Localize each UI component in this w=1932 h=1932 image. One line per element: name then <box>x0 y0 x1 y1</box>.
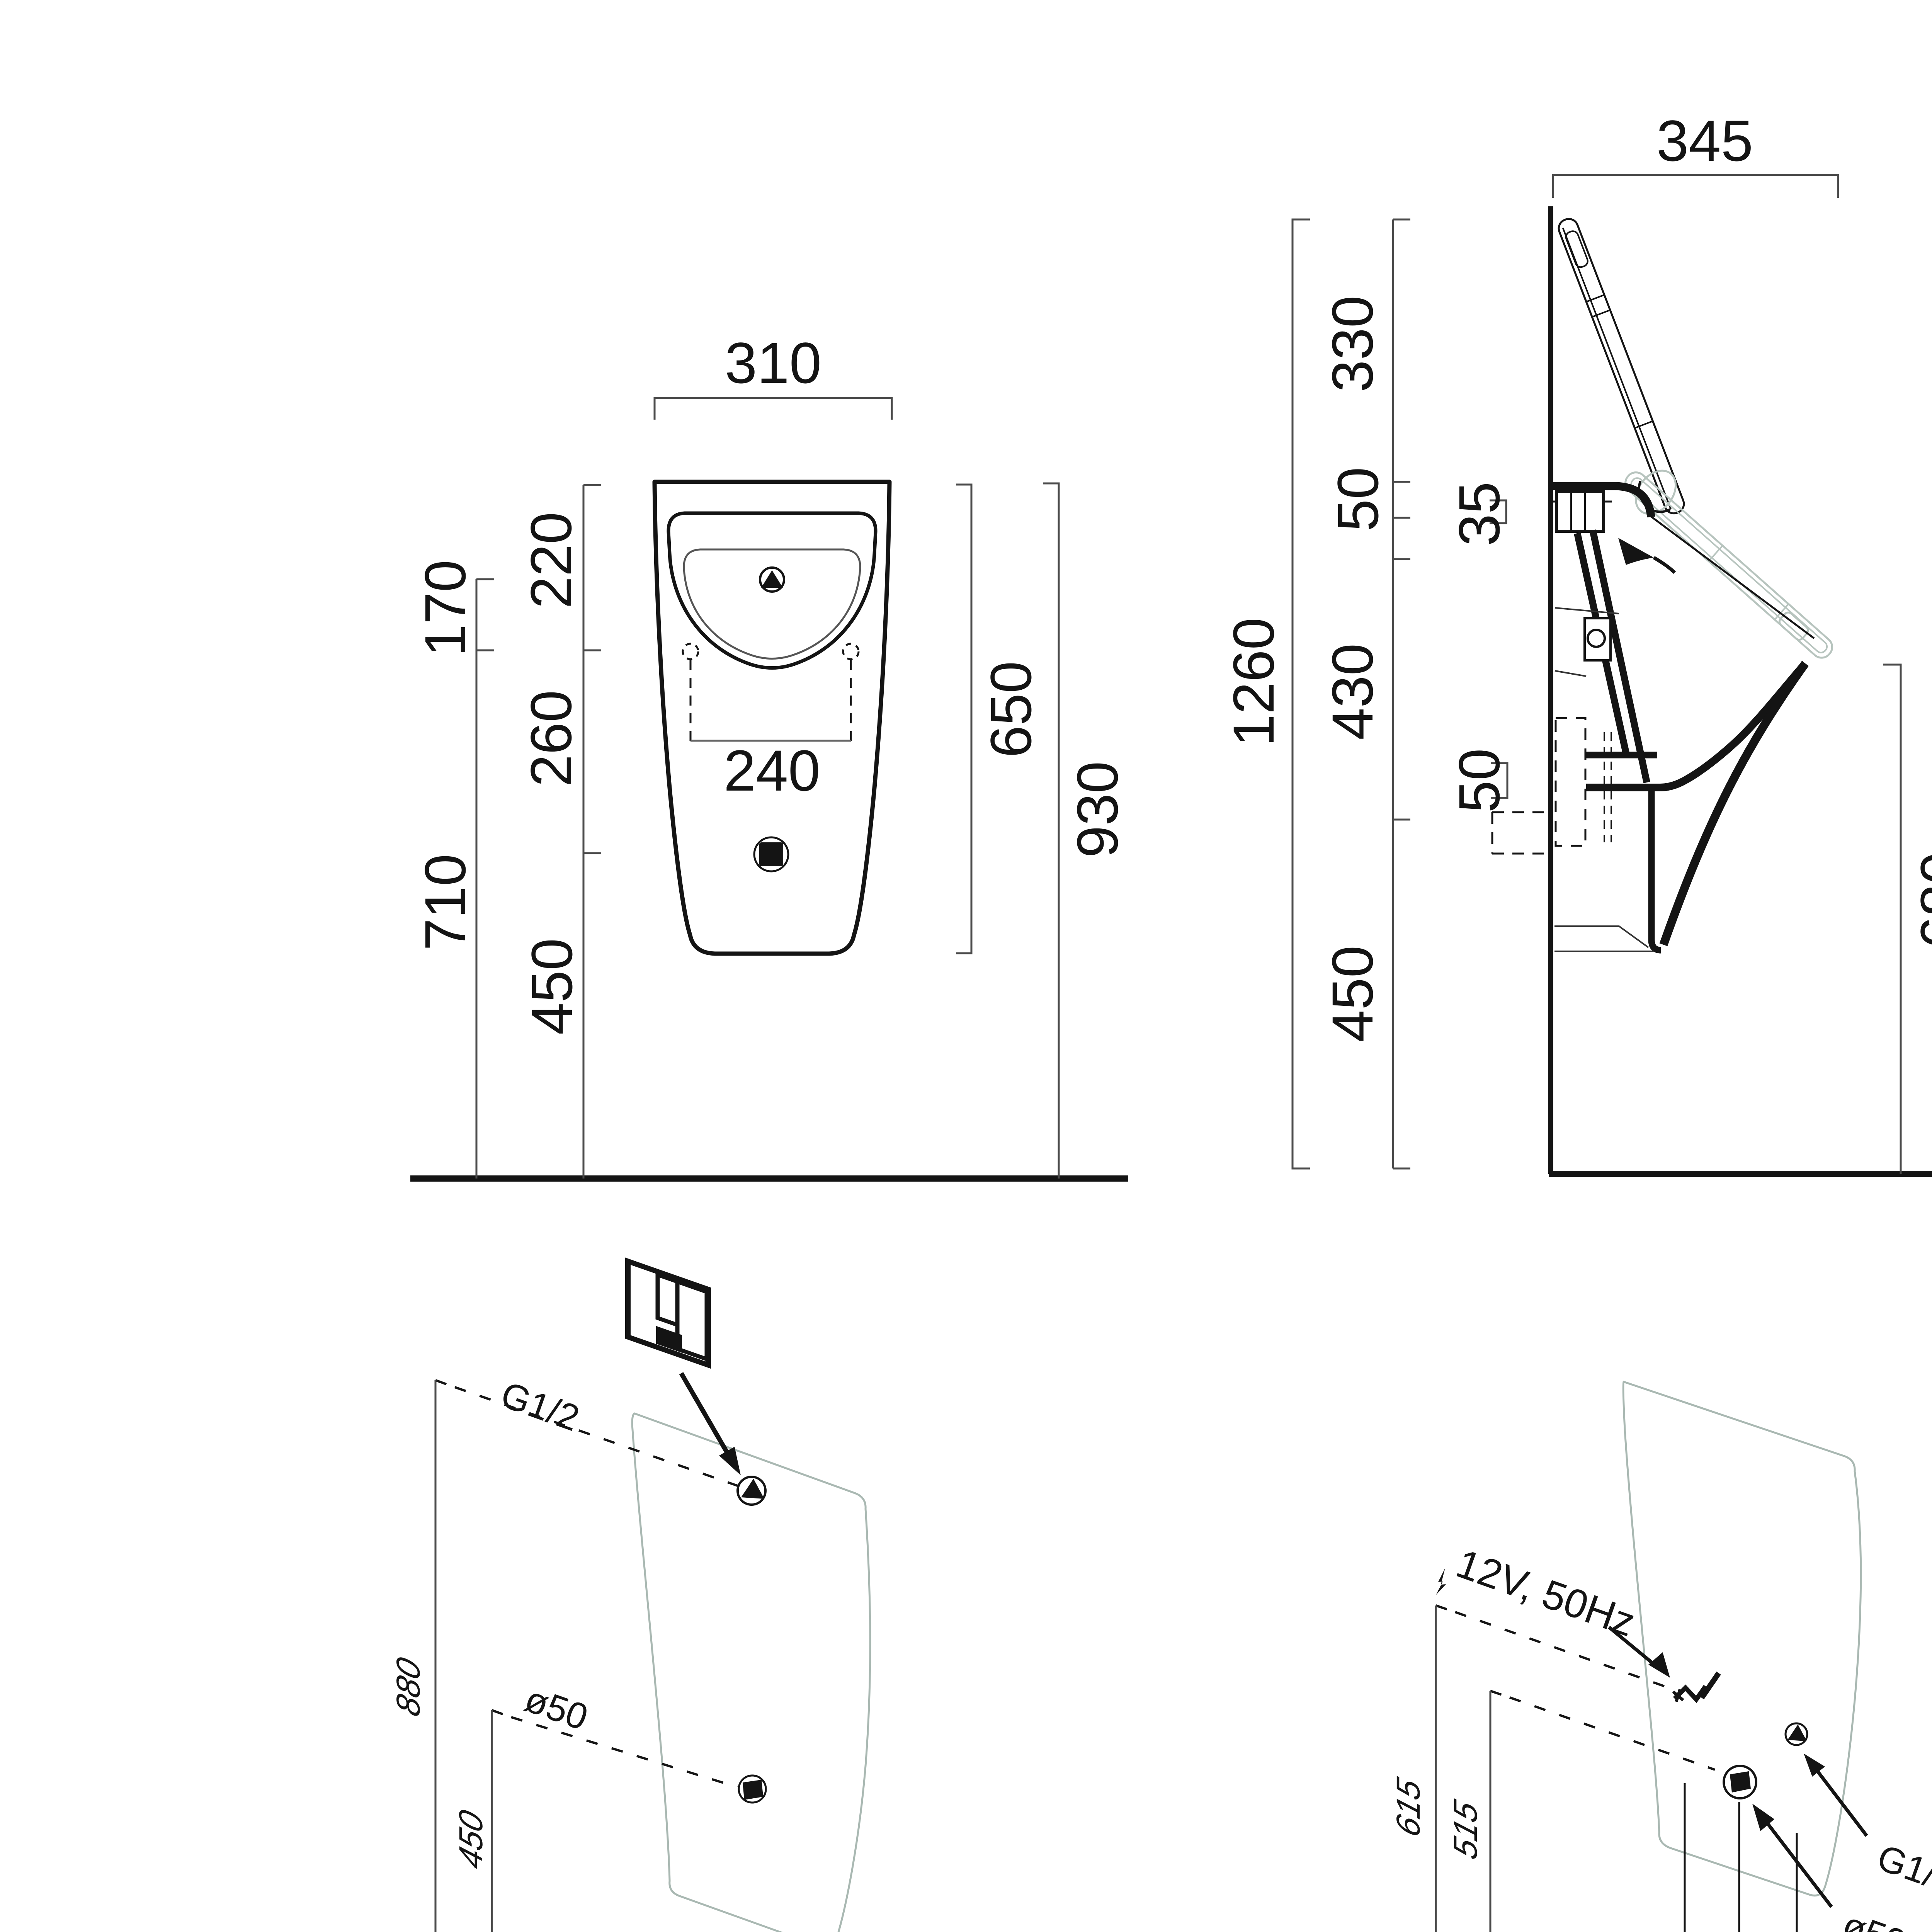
svg-text:450: 450 <box>519 938 584 1035</box>
svg-text:310: 310 <box>725 330 821 395</box>
svg-text:930: 930 <box>1065 761 1130 858</box>
svg-text:170: 170 <box>413 560 478 656</box>
svg-text:650: 650 <box>978 661 1043 758</box>
svg-text:50: 50 <box>1325 467 1390 532</box>
svg-text:345: 345 <box>1656 108 1753 173</box>
svg-text:50: 50 <box>1447 748 1512 813</box>
svg-text:35: 35 <box>1447 482 1512 546</box>
svg-text:220: 220 <box>519 512 583 609</box>
svg-text:260: 260 <box>519 690 583 787</box>
svg-text:330: 330 <box>1320 296 1385 392</box>
svg-text:1260: 1260 <box>1221 617 1286 747</box>
svg-text:450: 450 <box>1320 946 1385 1042</box>
svg-text:430: 430 <box>1320 643 1385 740</box>
svg-text:680: 680 <box>1908 852 1932 949</box>
svg-text:710: 710 <box>413 854 478 951</box>
svg-text:240: 240 <box>724 738 820 803</box>
